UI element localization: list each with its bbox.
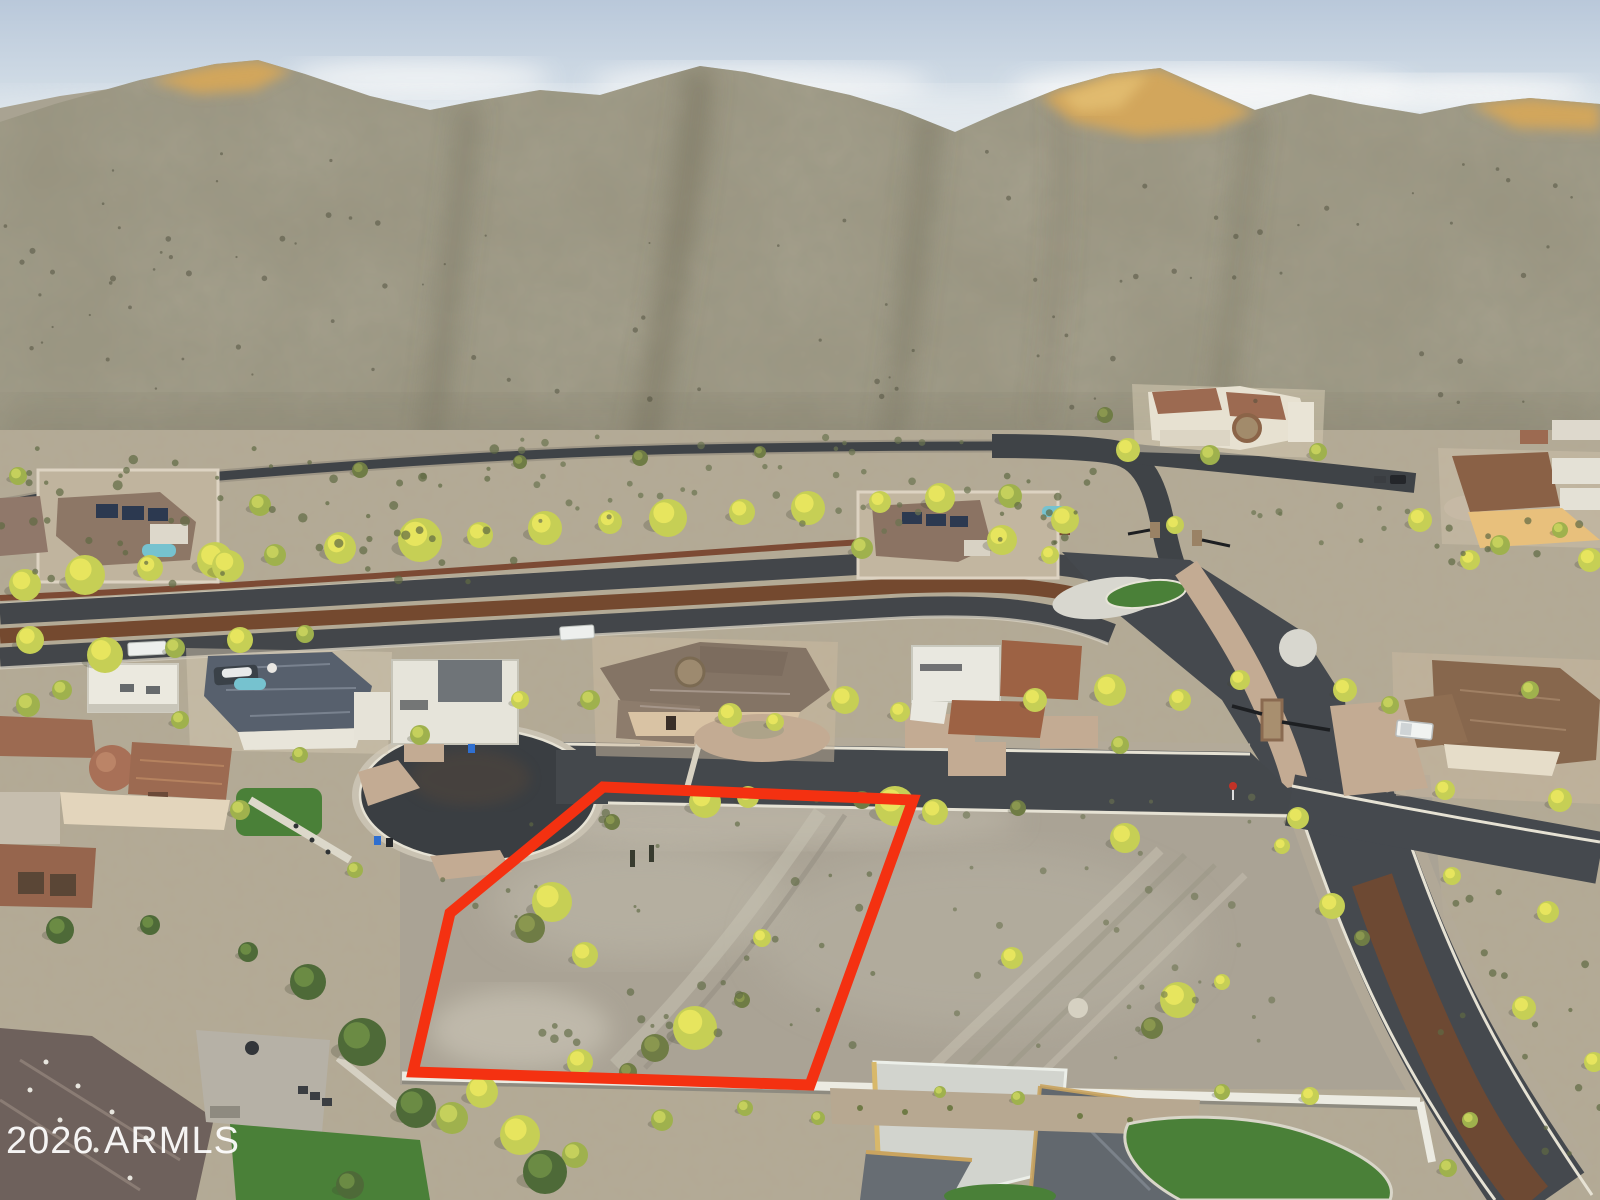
shrub (1377, 506, 1382, 511)
shrub (251, 373, 253, 375)
house-slate-roof (186, 648, 392, 754)
shrub (186, 270, 192, 276)
fire-pit (245, 1041, 259, 1055)
shrub (1276, 508, 1283, 515)
shrub (4, 224, 8, 228)
tree (49, 918, 64, 933)
shrub (819, 339, 822, 342)
shrub (874, 379, 880, 385)
shrub (895, 519, 902, 526)
tree (990, 528, 1007, 545)
shrub (1460, 551, 1465, 556)
shrub (349, 216, 353, 220)
shrub (112, 169, 114, 171)
shrub (1532, 1021, 1538, 1027)
shrub (1570, 196, 1573, 199)
shrub (714, 1028, 723, 1037)
tree (1515, 998, 1528, 1011)
shrub (1381, 526, 1386, 531)
shrub (1252, 1015, 1256, 1019)
shrub (262, 276, 268, 282)
shrub (118, 473, 123, 478)
shrub (657, 493, 664, 500)
shrub (26, 470, 32, 476)
tree (339, 1173, 354, 1188)
shrub (1192, 997, 1199, 1004)
tree (739, 1101, 748, 1110)
tree (11, 469, 21, 479)
shrub (128, 306, 132, 310)
tree (1172, 691, 1184, 703)
shrub (236, 344, 241, 349)
shrub (772, 936, 779, 943)
shrub (166, 236, 172, 242)
scene-svg (0, 0, 1600, 1200)
tree (1099, 408, 1108, 417)
shrub (953, 907, 957, 911)
tree (19, 695, 32, 708)
tree (925, 801, 939, 815)
tree (1554, 523, 1563, 532)
shrub (573, 1039, 581, 1047)
shrub (744, 955, 750, 961)
solar-panels (96, 504, 118, 518)
shrub (471, 355, 476, 360)
shrub (534, 481, 541, 488)
shrub (280, 236, 286, 242)
shrub (637, 1015, 645, 1023)
shrub (1446, 525, 1453, 532)
tree (575, 944, 589, 958)
shrub (169, 255, 173, 259)
tree (935, 1087, 942, 1094)
shrub (102, 202, 105, 205)
shrub (1069, 405, 1074, 410)
tree (470, 524, 484, 538)
shrub (371, 368, 374, 371)
shrub (394, 575, 403, 584)
shrub (326, 212, 332, 218)
shrub (1438, 392, 1443, 397)
shrub (514, 915, 517, 918)
shrub (529, 822, 533, 826)
shrub (1485, 533, 1491, 539)
shrub (252, 446, 257, 451)
shrub (1172, 269, 1177, 274)
shrub (1466, 895, 1474, 903)
shrub (30, 248, 36, 254)
shrub (1052, 315, 1055, 318)
shrub (106, 358, 110, 362)
shrub (777, 244, 780, 247)
shrub (889, 376, 891, 378)
tree (755, 447, 762, 454)
shrub (1233, 234, 1238, 239)
shrub (1419, 351, 1424, 356)
shrub (897, 502, 903, 508)
tree (70, 558, 92, 580)
shrub (1037, 354, 1040, 357)
shrub (1568, 1008, 1572, 1012)
shrub (1114, 927, 1120, 933)
shrub (1145, 886, 1153, 894)
shrub (666, 1022, 674, 1030)
shrub (1103, 920, 1109, 926)
shrub (638, 493, 644, 499)
tree (1336, 680, 1349, 693)
tree (1043, 548, 1053, 558)
shrub (566, 499, 573, 506)
shrub (19, 260, 24, 265)
tree (768, 715, 778, 725)
shrub (799, 520, 806, 527)
tree (1356, 931, 1365, 940)
tree (721, 705, 734, 718)
shrub (153, 268, 156, 271)
shrub (1149, 800, 1153, 804)
shrub (1040, 867, 1047, 874)
tree (401, 1091, 423, 1113)
tree (1437, 782, 1448, 793)
tree (513, 693, 523, 703)
shrub (1481, 949, 1488, 956)
shrub (396, 480, 403, 487)
shrub (1110, 356, 1116, 362)
shrub (329, 159, 332, 162)
shrub (1139, 985, 1144, 990)
shrub (697, 387, 701, 391)
tree (654, 1111, 666, 1123)
shrub (110, 276, 116, 282)
shrub (220, 571, 225, 576)
shrub (1084, 479, 1091, 486)
shrub (1489, 969, 1497, 977)
shrub (970, 866, 974, 870)
stone-turret (1234, 415, 1260, 441)
shrub (1521, 273, 1526, 278)
shrub (885, 303, 888, 306)
tree (1441, 1161, 1451, 1171)
shrub (169, 580, 177, 588)
tree (518, 916, 535, 933)
shrub (595, 435, 600, 440)
tree (232, 802, 243, 813)
tree (795, 494, 814, 513)
tree (91, 640, 111, 660)
shrub (38, 293, 41, 296)
hillside-mansion (1132, 384, 1325, 458)
shrub (172, 460, 179, 467)
shrub (366, 536, 372, 542)
shrub (117, 540, 123, 546)
tree (13, 572, 31, 590)
shrub (954, 1010, 960, 1016)
shrub (420, 473, 427, 480)
tree (505, 1118, 527, 1140)
shrub (1228, 901, 1236, 909)
shrub (860, 505, 866, 511)
shrub (438, 484, 442, 488)
shrub (44, 517, 51, 524)
tree (528, 1154, 552, 1178)
shrub (833, 472, 840, 479)
shrub (1553, 183, 1558, 188)
shrub (1138, 851, 1143, 856)
mountain-texture (0, 40, 1600, 480)
shrub (1485, 546, 1491, 552)
shrub (1581, 960, 1589, 968)
shrub (1575, 520, 1583, 528)
shrub (216, 180, 218, 182)
shrub (1522, 1054, 1528, 1060)
shrub (735, 991, 743, 999)
shrub (870, 971, 875, 976)
tree (834, 688, 849, 703)
tree (1551, 790, 1564, 803)
shrub (1546, 245, 1549, 248)
shrub (697, 442, 705, 450)
outdoor-kitchen (210, 1106, 240, 1118)
shrub (1161, 991, 1168, 998)
shrub (269, 464, 273, 468)
tree (732, 501, 746, 515)
shrub (485, 235, 487, 237)
shrub (484, 476, 490, 482)
shrub (773, 491, 781, 499)
tree (1012, 801, 1021, 810)
shrub (334, 539, 343, 548)
shrub (607, 514, 612, 519)
shrub (575, 506, 579, 510)
shrub (816, 1008, 821, 1013)
shrub (641, 315, 645, 319)
shrub (1457, 401, 1460, 404)
shrub (908, 478, 916, 486)
tree (412, 727, 423, 738)
shrub (486, 467, 490, 471)
tree (216, 553, 234, 571)
shrub (1542, 1148, 1549, 1155)
shrub (664, 1014, 669, 1019)
tree (1216, 1085, 1225, 1094)
shrub (1004, 473, 1011, 480)
tree (634, 451, 643, 460)
shrub (879, 394, 884, 399)
shrub (429, 535, 436, 542)
shrub (1257, 229, 1263, 235)
tree (678, 1010, 702, 1034)
shrub (1135, 1026, 1141, 1032)
shrub (507, 378, 511, 382)
shrub (650, 1024, 654, 1028)
shrub (1253, 399, 1257, 403)
tree (1464, 1113, 1473, 1122)
shrub (1033, 278, 1037, 282)
shrub (919, 439, 926, 446)
shrub (416, 526, 424, 534)
tree (230, 629, 244, 643)
shrub (1453, 900, 1460, 907)
shrub (85, 537, 92, 544)
shrub (1085, 866, 1089, 870)
shrub (1232, 275, 1236, 279)
shrub (490, 444, 500, 454)
shrub (359, 546, 367, 554)
tree (1581, 550, 1594, 563)
shrub (835, 507, 842, 514)
shrub (1501, 972, 1508, 979)
pool (142, 544, 176, 557)
shrub (1214, 216, 1218, 220)
shrub (1506, 178, 1510, 182)
tree (1001, 486, 1014, 499)
shrub (35, 446, 40, 451)
shrub (220, 152, 223, 155)
shrub (1074, 510, 1078, 514)
shrub (1114, 1056, 1117, 1059)
shrub (829, 874, 833, 878)
tree (1054, 508, 1069, 523)
tree (267, 546, 279, 558)
shrub (1172, 964, 1179, 971)
shrub (510, 557, 518, 565)
shrub (1046, 509, 1053, 516)
shrub (1496, 889, 1502, 895)
tree (854, 539, 866, 551)
shrub (366, 514, 370, 518)
shrub (1000, 512, 1004, 516)
shrub (89, 314, 91, 316)
shrub (32, 569, 38, 575)
shrub (849, 449, 856, 456)
shrub (440, 877, 445, 882)
shrub (1190, 277, 1192, 279)
shrub (182, 358, 185, 361)
shrub (1438, 1029, 1444, 1035)
shrub (550, 1034, 559, 1043)
white-pickup-truck (1396, 720, 1433, 740)
tree (1216, 975, 1225, 984)
shrub (602, 809, 610, 817)
shrub (834, 446, 839, 451)
shrub (180, 516, 190, 526)
shrub (692, 490, 698, 496)
tree (755, 931, 765, 941)
shrub (155, 387, 157, 389)
shrub (912, 349, 915, 352)
tree (470, 1079, 488, 1097)
patio-umbrella (267, 663, 277, 673)
shrub (541, 439, 549, 447)
tree (565, 1144, 579, 1158)
shrub (215, 476, 219, 480)
shrub (1359, 538, 1364, 543)
shrub (855, 904, 863, 912)
shrub (168, 518, 174, 524)
shrub (422, 284, 424, 286)
shrub (375, 220, 381, 226)
tree (653, 502, 674, 523)
shrub (365, 566, 371, 572)
shrub (1268, 997, 1275, 1004)
shrub (895, 387, 899, 391)
shrub (29, 517, 38, 526)
tree (532, 514, 551, 533)
shrub (1036, 1043, 1041, 1048)
shrub (867, 871, 873, 877)
shrub (118, 226, 121, 229)
shrub (842, 441, 847, 446)
tree (1202, 447, 1213, 458)
shrub (217, 495, 223, 501)
shrub (307, 460, 312, 465)
shrub (382, 283, 387, 288)
shrub (109, 281, 113, 285)
shrub (325, 501, 329, 505)
stone-turret (676, 658, 704, 686)
shrub (915, 509, 922, 516)
shrub (41, 341, 43, 343)
shrub (235, 256, 237, 258)
tree (354, 463, 363, 472)
shrub (1142, 184, 1147, 189)
shrub (483, 527, 491, 535)
shrub (964, 487, 971, 494)
shrub (465, 579, 470, 584)
shrub (627, 988, 635, 996)
shrub (996, 922, 1003, 929)
shrub (1280, 272, 1283, 275)
shrub (520, 438, 524, 442)
shrub (401, 531, 410, 540)
shrub (1248, 794, 1255, 801)
tree (1013, 1092, 1021, 1100)
tree (570, 1051, 584, 1065)
shrub (1257, 1039, 1261, 1043)
shrub (129, 455, 138, 464)
shrub (881, 528, 887, 534)
shrub (998, 537, 1003, 542)
shrub (123, 550, 129, 556)
tree (1523, 683, 1533, 693)
gatehouse (1262, 700, 1282, 740)
shrub (1094, 397, 1096, 399)
shrub (1248, 820, 1252, 824)
shrub (721, 980, 726, 985)
shrub (634, 905, 637, 908)
tree (1113, 826, 1130, 843)
boulder (1068, 998, 1088, 1018)
tree (1119, 440, 1132, 453)
shrub (1191, 893, 1199, 901)
shrub (1065, 334, 1069, 338)
shrub (1319, 540, 1324, 545)
pool (234, 678, 266, 690)
shrub (1251, 510, 1256, 515)
shrub (538, 519, 542, 523)
shrub (649, 242, 651, 244)
shrub (1324, 206, 1329, 211)
shrub (1496, 167, 1500, 171)
shrub (294, 242, 296, 244)
tree (298, 627, 308, 637)
shrub (1054, 493, 1062, 501)
shrub (1434, 544, 1439, 549)
shrub (1544, 1126, 1548, 1130)
shrub (29, 346, 33, 350)
shrub (555, 389, 560, 394)
tree (240, 944, 251, 955)
